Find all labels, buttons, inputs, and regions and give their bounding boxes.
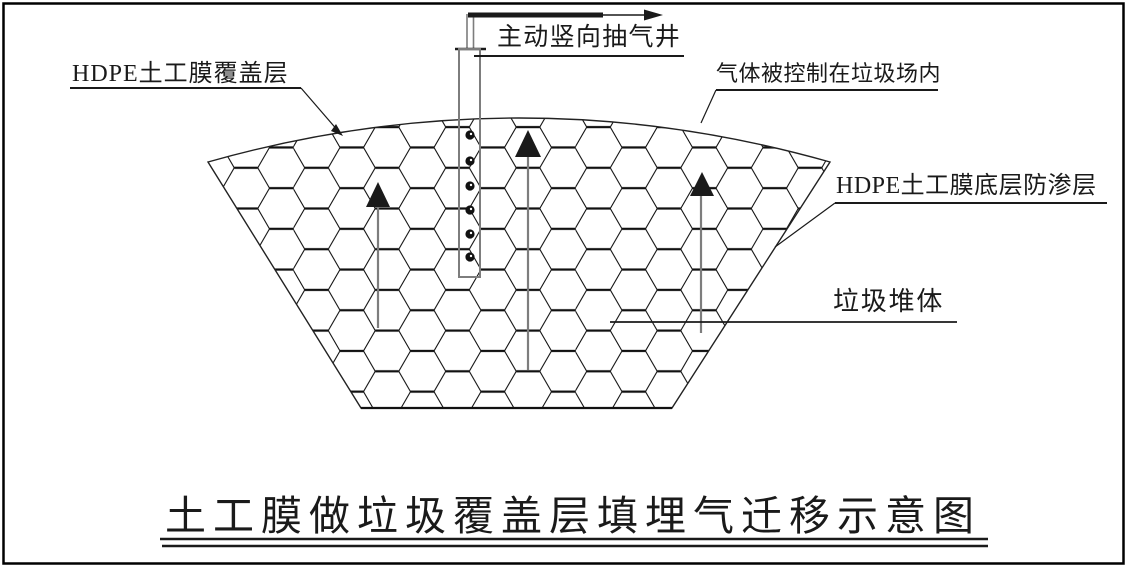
label-waste-body: 垃圾堆体 <box>833 287 944 316</box>
label-active-well: 主动竖向抽气井 <box>497 23 681 51</box>
well-riser-tube <box>467 14 474 49</box>
landfill-gas-diagram: HDPE土工膜覆盖层 主动竖向抽气井 气体被控制在垃圾场内 HDPE土工膜底层防… <box>0 0 1127 567</box>
hex-membrane-pattern <box>200 70 840 415</box>
right-arrow-icon <box>644 10 663 21</box>
well-perforation-dot <box>465 229 474 238</box>
drawing-canvas: HDPE土工膜覆盖层 主动竖向抽气井 气体被控制在垃圾场内 HDPE土工膜底层防… <box>0 0 1127 567</box>
well-perforation-dot <box>465 130 474 139</box>
diagram-title: 土工膜做垃圾覆盖层填埋气迁移示意图 <box>165 493 981 539</box>
well-perforation-dot <box>465 205 474 214</box>
well-perforation-dot <box>465 252 474 261</box>
waste-mound <box>200 70 840 415</box>
well-perforation-dot <box>465 181 474 190</box>
label-hdpe-liner: HDPE土工膜底层防渗层 <box>836 172 1097 199</box>
label-hdpe-cover: HDPE土工膜覆盖层 <box>72 60 289 87</box>
leader-line-hdpe-cover <box>301 88 339 132</box>
leader-line-gas-contained <box>701 90 716 123</box>
diagram-title-block: 土工膜做垃圾覆盖层填埋气迁移示意图 <box>160 493 988 546</box>
well-perforation-dot <box>465 156 474 165</box>
label-gas-contained: 气体被控制在垃圾场内 <box>716 61 941 86</box>
